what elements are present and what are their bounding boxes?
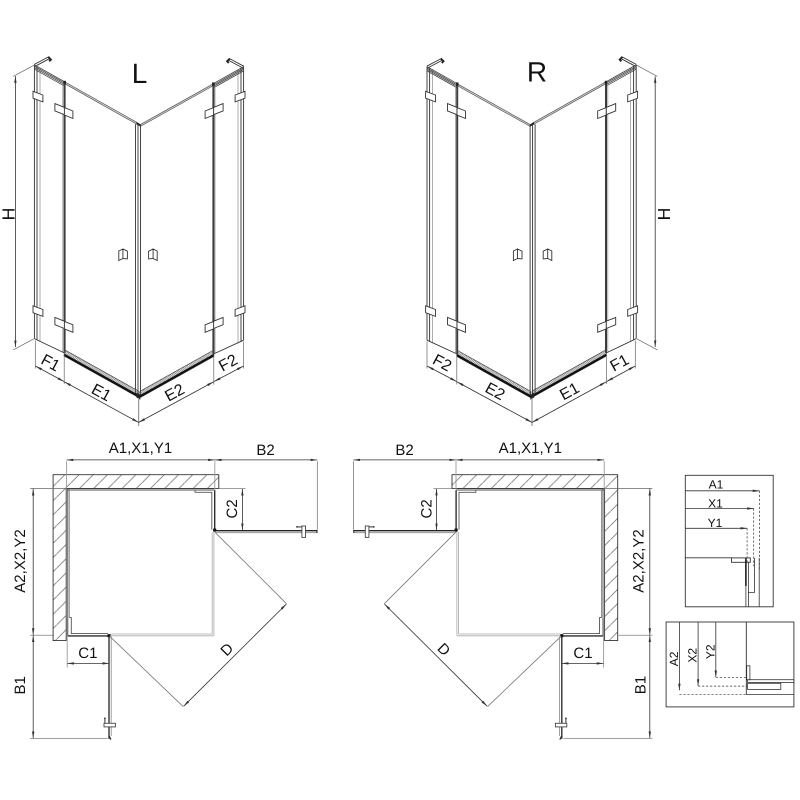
svg-text:Y2: Y2 xyxy=(703,644,717,659)
svg-text:B2: B2 xyxy=(256,442,274,459)
svg-text:L: L xyxy=(132,58,148,89)
svg-text:R: R xyxy=(527,57,547,88)
svg-text:A2,X2,Y2: A2,X2,Y2 xyxy=(631,529,648,592)
svg-text:B1: B1 xyxy=(12,676,29,694)
svg-text:A2,X2,Y2: A2,X2,Y2 xyxy=(12,529,29,592)
svg-text:A1,X1,Y1: A1,X1,Y1 xyxy=(109,440,172,457)
svg-text:C1: C1 xyxy=(573,645,592,662)
svg-text:H: H xyxy=(0,208,18,221)
svg-text:H: H xyxy=(654,208,674,221)
svg-text:Y1: Y1 xyxy=(708,516,723,530)
svg-text:A1,X1,Y1: A1,X1,Y1 xyxy=(499,440,562,457)
svg-text:C1: C1 xyxy=(78,645,97,662)
svg-text:A1: A1 xyxy=(709,477,724,491)
svg-text:X1: X1 xyxy=(708,497,723,511)
svg-text:B2: B2 xyxy=(395,442,413,459)
svg-text:B1: B1 xyxy=(633,676,650,694)
svg-text:C2: C2 xyxy=(224,499,241,518)
svg-text:X2: X2 xyxy=(686,648,700,663)
svg-text:A2: A2 xyxy=(667,651,681,666)
svg-text:C2: C2 xyxy=(419,499,436,518)
